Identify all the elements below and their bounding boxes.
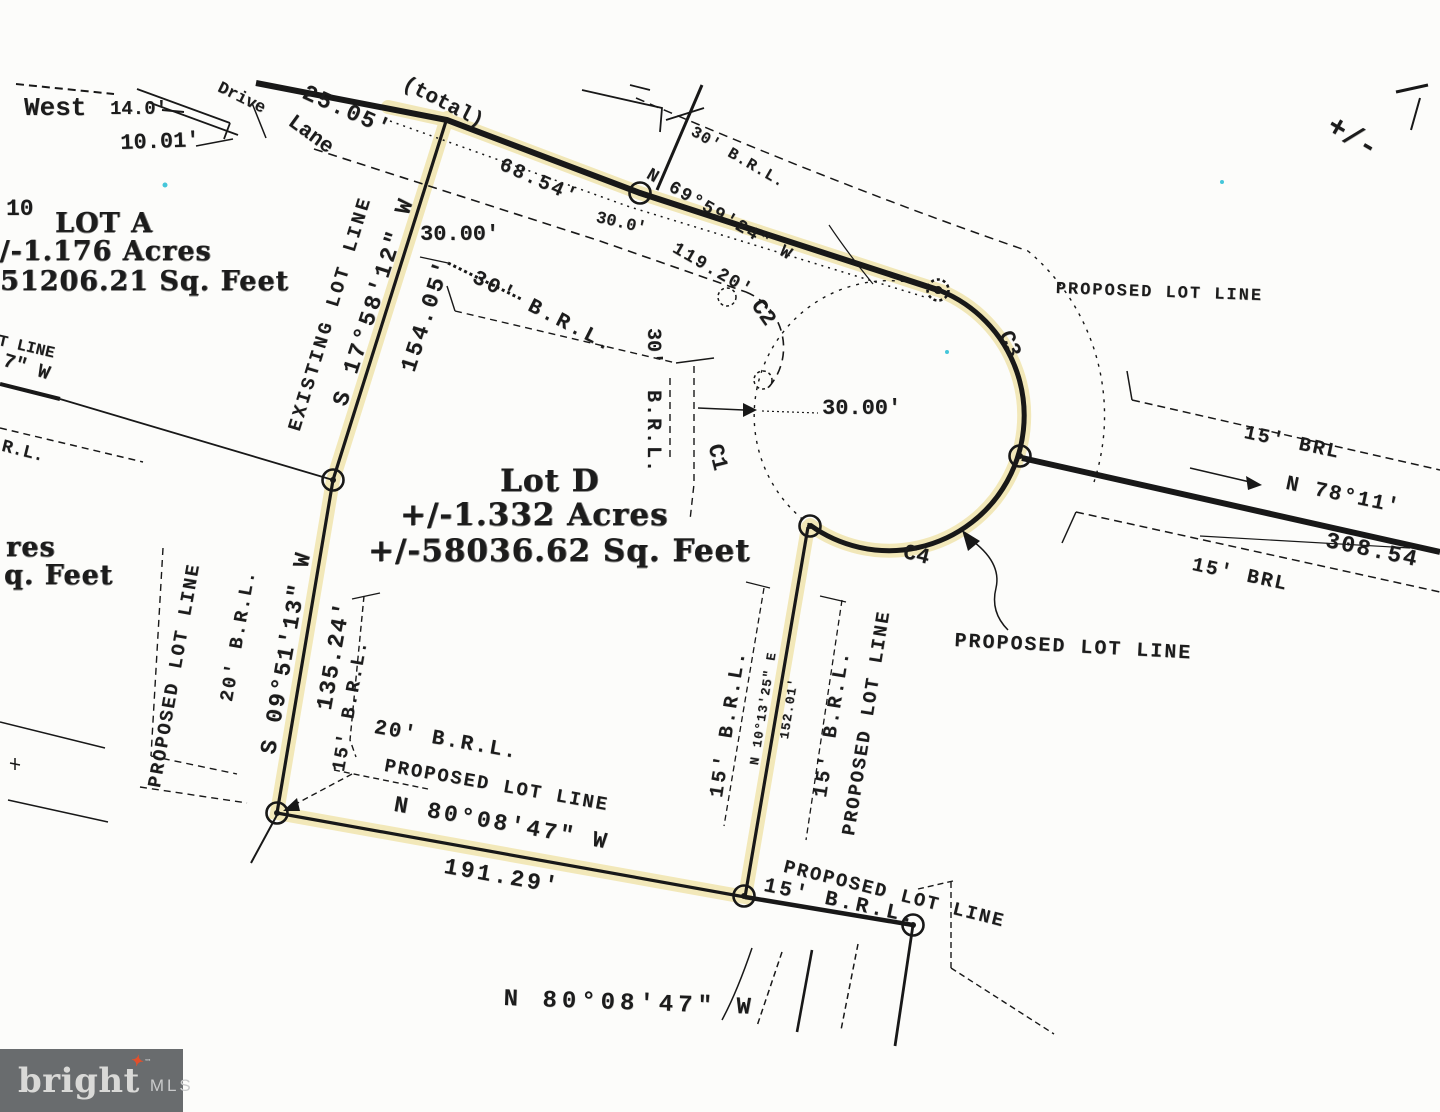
brightmls-suffix: MLS — [150, 1076, 194, 1096]
brightmls-brand-text: bright — [18, 1061, 140, 1101]
brightmls-star-icon: ✦ — [130, 1052, 145, 1069]
plat-scan-page: { "page": { "background": "#fcfcfa", "in… — [0, 0, 1440, 1112]
survey-markers — [267, 183, 1031, 936]
brightmls-wordmark: bright ✦ ™ — [18, 1061, 140, 1101]
highlighter-trace — [277, 107, 1024, 897]
plat-drawing — [0, 0, 1440, 1112]
brightmls-logo: bright ✦ ™ MLS — [0, 1049, 183, 1112]
brightmls-tm: ™ — [144, 1057, 152, 1066]
